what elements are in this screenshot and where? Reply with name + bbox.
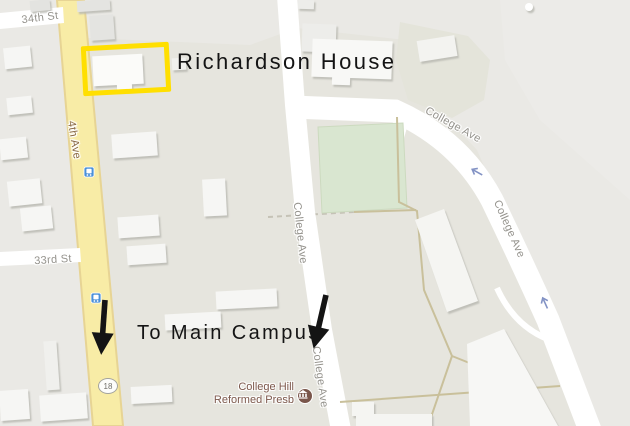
church-glyph: [298, 389, 308, 399]
annotation-title: Richardson House: [177, 49, 396, 75]
annotation-campus-note: To Main Campus: [137, 322, 321, 345]
bus-stop-icon[interactable]: [91, 293, 101, 303]
poi-college-hill-label[interactable]: College Hill Reformed Presb: [206, 381, 294, 406]
map-canvas[interactable]: 34th St 4th Ave 33rd St College Ave Coll…: [0, 0, 630, 426]
poi-name-line2: Reformed Presb: [206, 394, 294, 407]
bus-stop-icon[interactable]: [84, 167, 94, 177]
route-shield-number: 18: [104, 382, 113, 391]
highlight-rectangle: [81, 42, 171, 97]
green-field: [318, 123, 407, 213]
route-shield: 18: [98, 378, 118, 394]
poi-name-line1: College Hill: [206, 381, 294, 394]
place-of-worship-icon[interactable]: [297, 388, 313, 404]
